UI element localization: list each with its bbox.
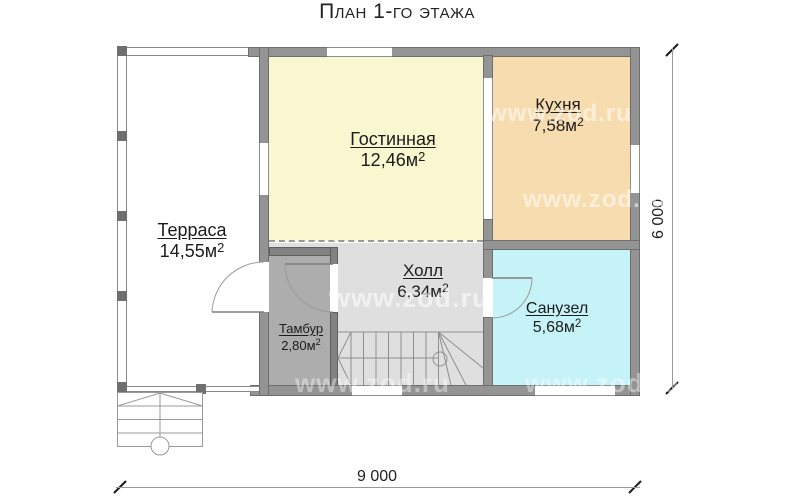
- vestibule-door-swing: [285, 264, 333, 312]
- room-name-hall: Холл: [397, 261, 449, 281]
- room-name-living: Гостинная: [350, 129, 436, 150]
- label-bathroom: Санузел 5,68м2: [526, 300, 588, 338]
- room-area-terrace: 14,55м2: [160, 241, 225, 261]
- floor-plan: План 1-го этажа: [0, 0, 795, 496]
- terrace-door-swing: [212, 262, 264, 312]
- room-name-kitchen: Кухня: [532, 95, 584, 115]
- label-vestibule: Тамбур 2,80м2: [279, 322, 323, 354]
- label-hall: Холл 6,34м2: [397, 261, 449, 301]
- room-area-bathroom: 5,68м2: [533, 319, 582, 336]
- room-name-vestibule: Тамбур: [279, 322, 323, 337]
- room-name-terrace: Терраса: [157, 220, 226, 241]
- dimension-line-bottom: [116, 487, 640, 488]
- room-area-vestibule: 2,80м2: [281, 338, 320, 353]
- entry-steps: [118, 393, 203, 456]
- label-kitchen: Кухня 7,58м2: [532, 95, 584, 135]
- room-area-living: 12,46м2: [361, 150, 426, 170]
- room-name-bathroom: Санузел: [526, 300, 588, 318]
- room-area-kitchen: 7,58м2: [532, 116, 584, 135]
- label-terrace: Терраса 14,55м2: [157, 220, 226, 261]
- label-living: Гостинная 12,46м2: [350, 129, 436, 170]
- staircase: [338, 332, 483, 385]
- dimension-label-height: 6 000: [650, 199, 668, 239]
- plan-linework: [0, 0, 795, 496]
- room-area-hall: 6,34м2: [397, 282, 449, 301]
- dimension-line-right: [672, 48, 673, 390]
- dimension-label-width: 9 000: [357, 468, 397, 486]
